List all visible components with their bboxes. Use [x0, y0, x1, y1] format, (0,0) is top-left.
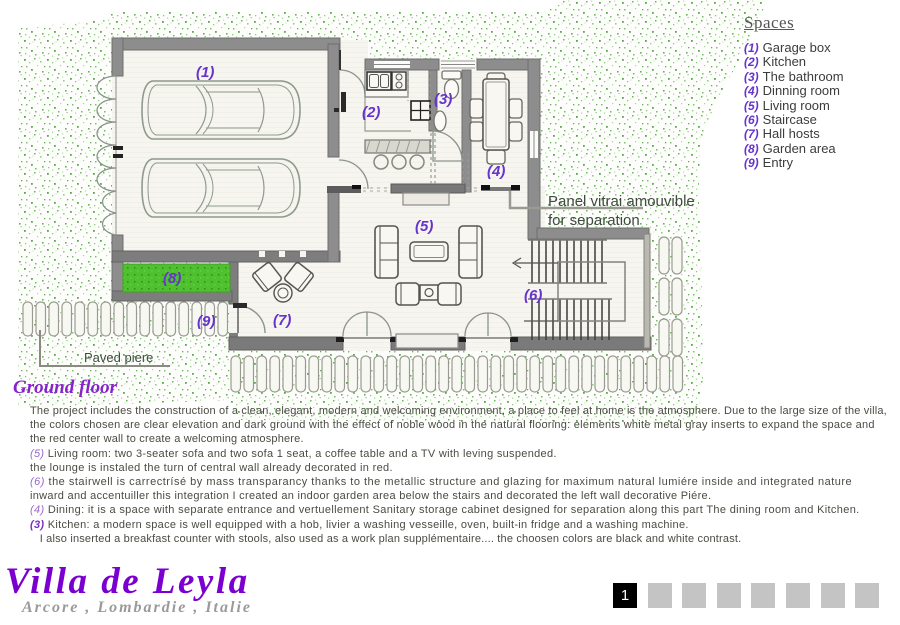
svg-text:Panel vitrai amouvible: Panel vitrai amouvible [548, 193, 695, 210]
svg-text:Paved piere: Paved piere [84, 350, 153, 365]
svg-text:(4): (4) [487, 163, 505, 180]
svg-text:(6): (6) [524, 287, 542, 304]
svg-text:for separation: for separation [548, 212, 640, 229]
svg-text:(7): (7) [273, 312, 291, 329]
svg-text:(1): (1) [196, 64, 214, 81]
svg-text:(3): (3) [434, 91, 452, 108]
svg-text:(5): (5) [415, 218, 433, 235]
svg-text:(9): (9) [197, 313, 215, 330]
svg-text:(2): (2) [362, 104, 380, 121]
svg-text:(8): (8) [163, 270, 181, 287]
